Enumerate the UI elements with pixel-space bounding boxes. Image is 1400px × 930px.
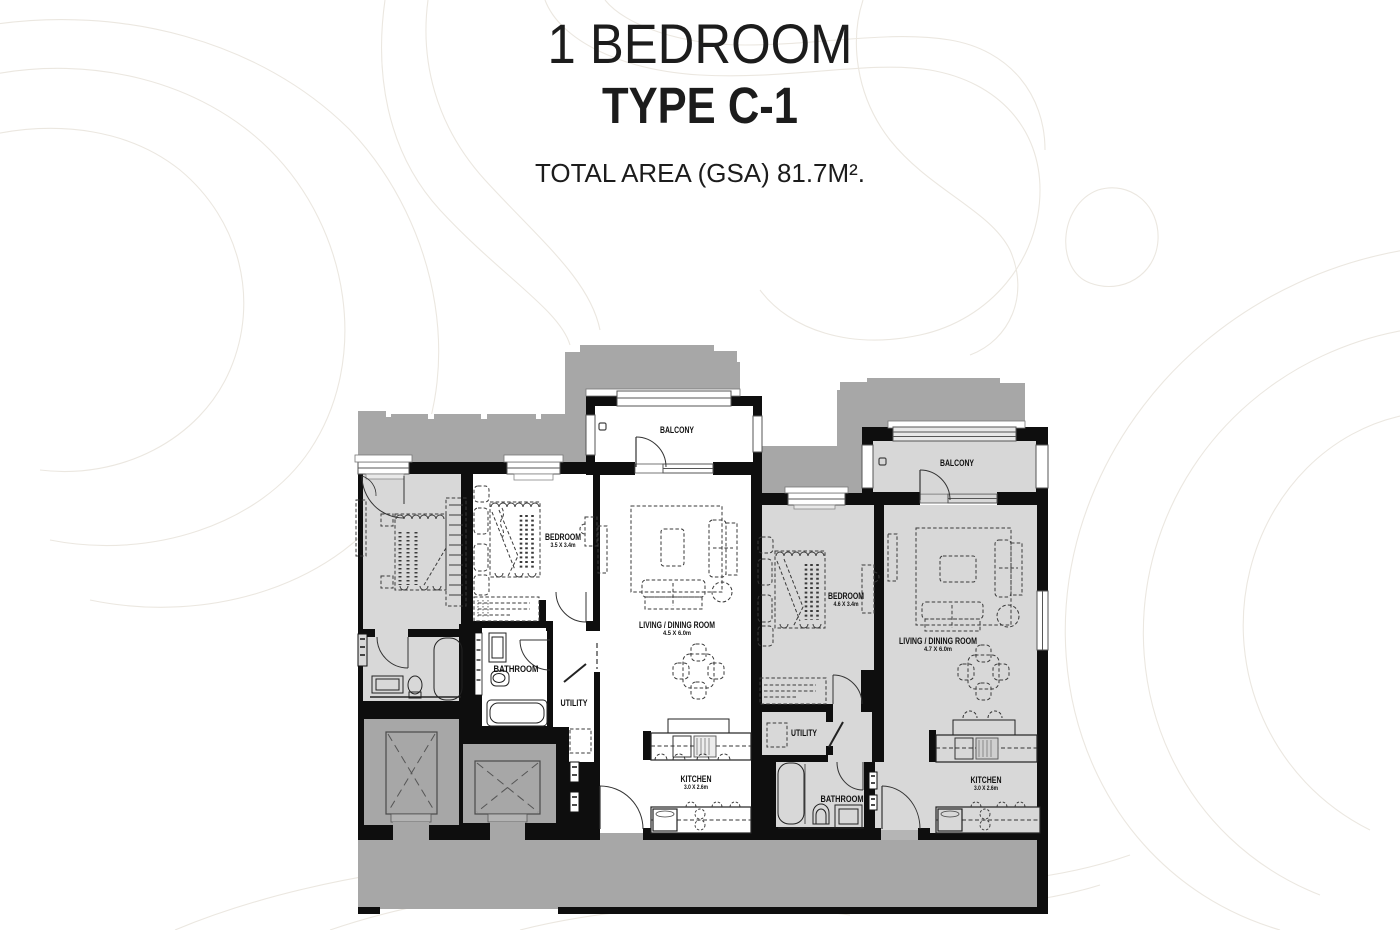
svg-text:TYPE C-1: TYPE C-1: [602, 77, 798, 134]
svg-text:BEDROOM: BEDROOM: [545, 532, 581, 542]
svg-text:KITCHEN: KITCHEN: [681, 774, 712, 784]
svg-text:UTILITY: UTILITY: [791, 728, 817, 738]
svg-text:TOTAL AREA (GSA) 81.7M².: TOTAL AREA (GSA) 81.7M².: [535, 158, 865, 188]
svg-text:BALCONY: BALCONY: [660, 425, 694, 435]
svg-text:3.0 X 2.6m: 3.0 X 2.6m: [974, 785, 998, 792]
svg-text:UTILITY: UTILITY: [561, 698, 588, 708]
svg-text:BATHROOM: BATHROOM: [821, 794, 864, 804]
svg-text:1 BEDROOM: 1 BEDROOM: [548, 12, 853, 75]
svg-text:3.0 X 2.6m: 3.0 X 2.6m: [684, 784, 708, 791]
svg-text:3.5 X 3.4m: 3.5 X 3.4m: [551, 542, 576, 549]
svg-text:BEDROOM: BEDROOM: [828, 591, 864, 601]
svg-text:LIVING / DINING ROOM: LIVING / DINING ROOM: [899, 636, 977, 646]
svg-text:BALCONY: BALCONY: [940, 458, 974, 468]
svg-text:4.5 X 6.0m: 4.5 X 6.0m: [663, 630, 691, 637]
svg-text:KITCHEN: KITCHEN: [971, 775, 1002, 785]
svg-text:4.7 X 6.0m: 4.7 X 6.0m: [924, 646, 952, 653]
svg-text:4.6 X 3.4m: 4.6 X 3.4m: [834, 601, 859, 608]
svg-text:LIVING / DINING ROOM: LIVING / DINING ROOM: [639, 620, 715, 630]
svg-text:BATHROOM: BATHROOM: [494, 664, 539, 674]
